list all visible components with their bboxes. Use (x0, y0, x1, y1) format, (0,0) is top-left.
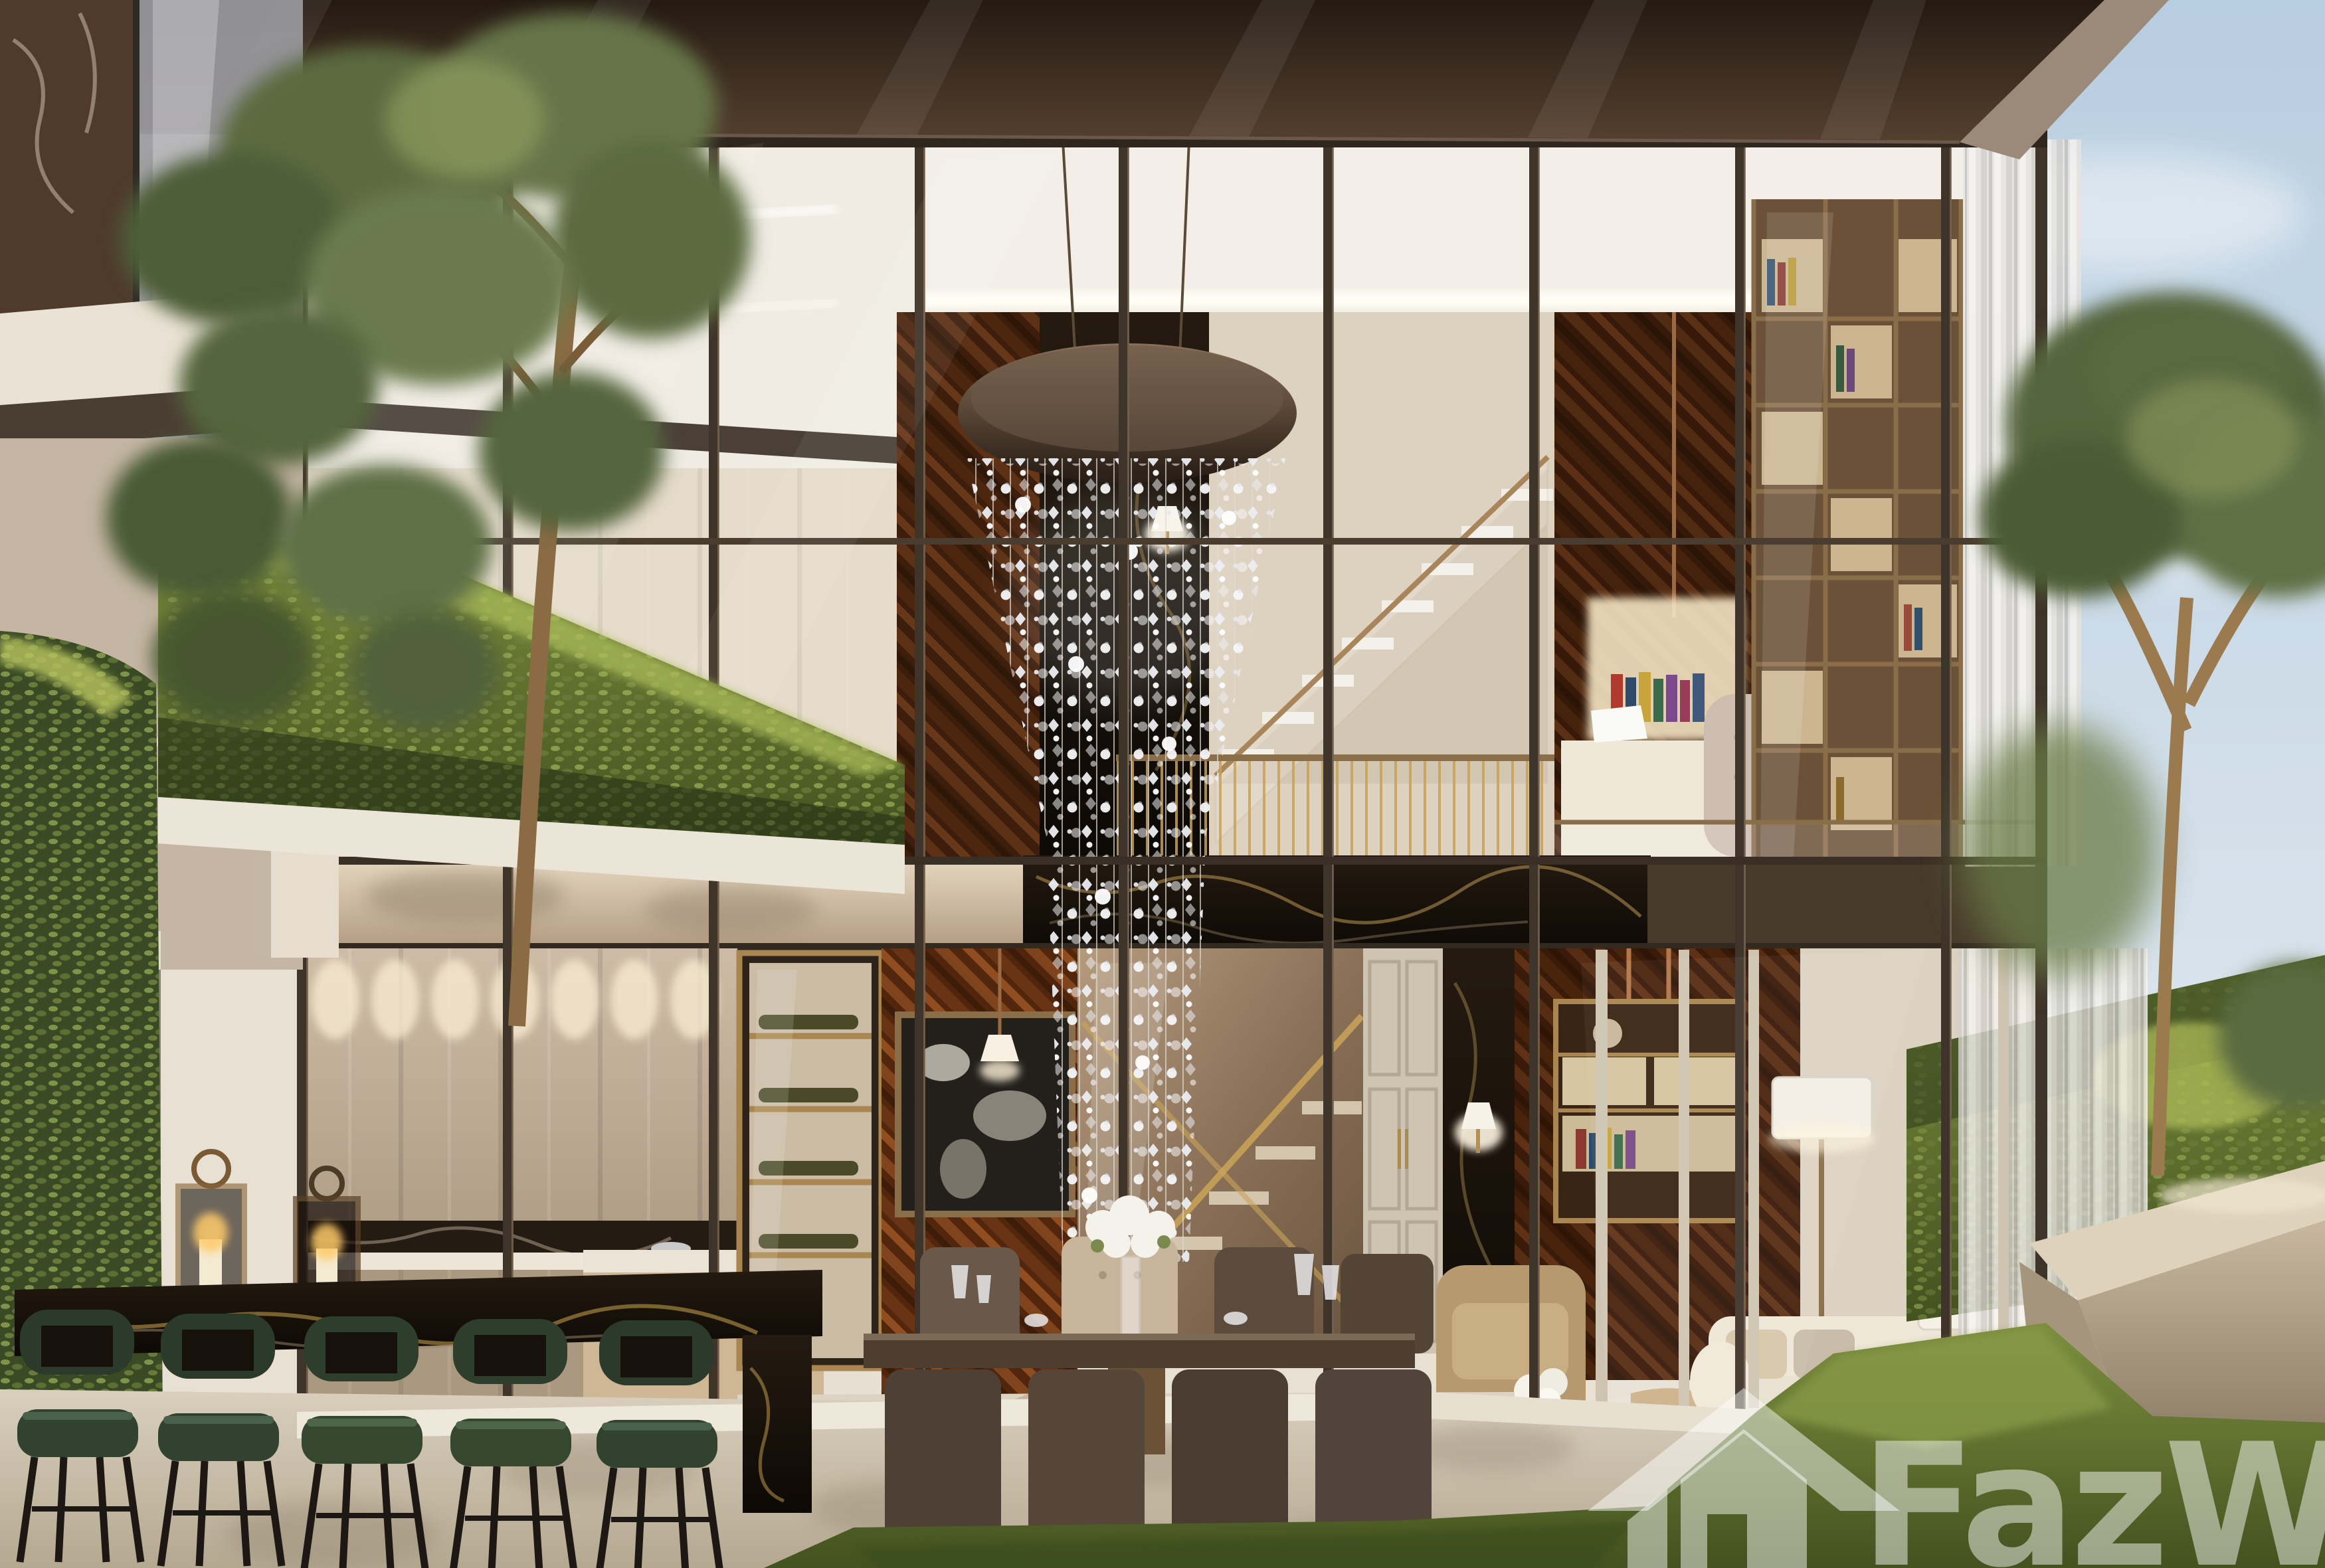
library-bookshelf (1754, 199, 1963, 867)
sunlit-foliage (385, 60, 545, 179)
laptop (1591, 705, 1647, 742)
sunlit-foliage (2126, 379, 2298, 498)
sunlit-stone (2159, 1178, 2325, 1213)
background-tree (1960, 724, 2159, 976)
bar-end-panel (743, 1335, 812, 1513)
render-image: FazWaz (0, 0, 2325, 1568)
candle-flame (193, 1213, 228, 1253)
candle-flame (311, 1223, 343, 1261)
